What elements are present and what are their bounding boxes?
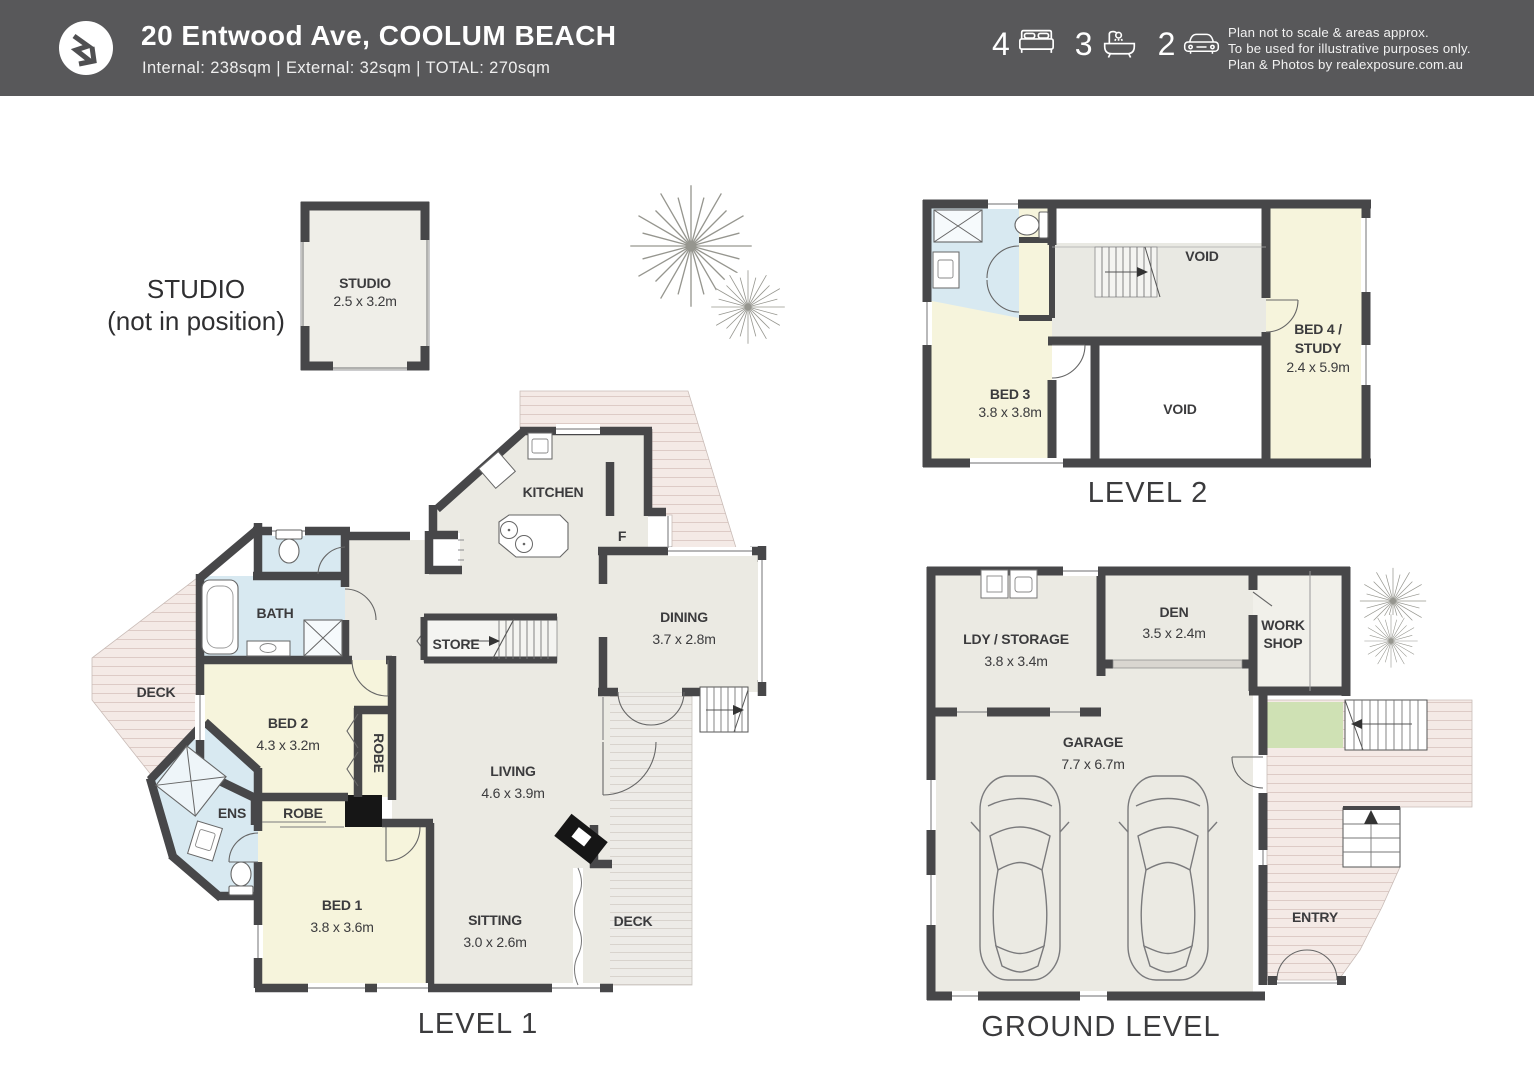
room-label-entry: ENTRY [1292,909,1339,925]
room-dims-bed2: 4.3 x 3.2m [256,737,319,753]
room-dims-living: 4.6 x 3.9m [481,785,544,801]
room-label-living: LIVING [490,763,536,779]
room-label-studio: STUDIO [339,275,391,291]
room-label-void-top: VOID [1185,248,1219,264]
room-label-bed4-line1: BED 4 / [1294,321,1342,337]
room-label-garage: GARAGE [1063,734,1123,750]
level2-void-top-area [1052,204,1266,243]
ground-title: GROUND LEVEL [981,1011,1220,1043]
room-label-den: DEN [1160,604,1189,620]
room-label-bed1: BED 1 [322,897,363,913]
level1-external-stairs [700,687,748,732]
studio-plan: STUDIO (not in position) STUDIO 2.5 x 3.… [107,202,429,370]
room-label-bath: BATH [256,605,293,621]
room-label-bed4-line2: STUDY [1295,340,1342,356]
room-dims-den: 3.5 x 2.4m [1142,625,1205,641]
ens-toilet [231,862,251,886]
level2-vanity [933,252,959,288]
room-label-robe-bed1: ROBE [283,805,323,821]
room-label-workshop-line1: WORK [1261,617,1305,633]
room-label-ldy: LDY / STORAGE [963,631,1069,647]
room-dims-bed1: 3.8 x 3.6m [310,919,373,935]
studio-annotation-line1: STUDIO [147,274,245,304]
level2-hall [1052,341,1097,463]
room-label-deck-left: DECK [137,684,176,700]
door-jamb-right [1337,976,1346,985]
room-dims-garage: 7.7 x 6.7m [1061,756,1124,772]
room-label-workshop-line2: SHOP [1264,635,1303,651]
room-label-store: STORE [433,636,480,652]
studio-annotation-line2: (not in position) [107,306,285,336]
room-dims-bed4: 2.4 x 5.9m [1286,359,1349,375]
room-label-void-bottom: VOID [1163,401,1197,417]
room-dims-dining: 3.7 x 2.8m [652,631,715,647]
room-label-deck-right: DECK [614,913,653,929]
room-label-dining: DINING [660,609,708,625]
ground-plan: LDY / STORAGE 3.8 x 3.4m DEN 3.5 x 2.4m … [926,566,1472,1043]
room-label-bed3: BED 3 [990,386,1031,402]
door-jamb-left [1268,976,1277,985]
washing-machine [981,570,1008,598]
room-dims-sitting: 3.0 x 2.6m [463,934,526,950]
level2-robe [1019,240,1052,318]
floorplan-canvas: STUDIO (not in position) STUDIO 2.5 x 3.… [0,0,1534,1085]
level1-title: LEVEL 1 [418,1008,538,1040]
room-label-kitchen: KITCHEN [523,484,584,500]
ground-grass-patch [1267,702,1343,748]
room-label-sitting: SITTING [468,912,522,928]
level2-title: LEVEL 2 [1088,477,1208,509]
room-label-fridge: F [618,528,627,544]
room-dims-ldy: 3.8 x 3.4m [984,653,1047,669]
room-label-ens: ENS [218,805,246,821]
ground-stairs-lower [1343,808,1400,867]
level2-plan: BED 3 3.8 x 3.8m BED 4 / STUDY 2.4 x 5.9… [922,199,1371,509]
room-dims-studio: 2.5 x 3.2m [333,293,396,309]
ground-stairs-upper [1345,700,1427,750]
den-sliding-window [1113,660,1242,668]
laundry-tub [1010,570,1037,598]
floorplan-page: 20 Entwood Ave, COOLUM BEACH Internal: 2… [0,0,1534,1085]
room-label-bed2: BED 2 [268,715,309,731]
room-dims-bed3: 3.8 x 3.8m [978,404,1041,420]
room-label-robe-bed2: ROBE [371,733,387,773]
level1-wardrobe-block [345,795,382,827]
